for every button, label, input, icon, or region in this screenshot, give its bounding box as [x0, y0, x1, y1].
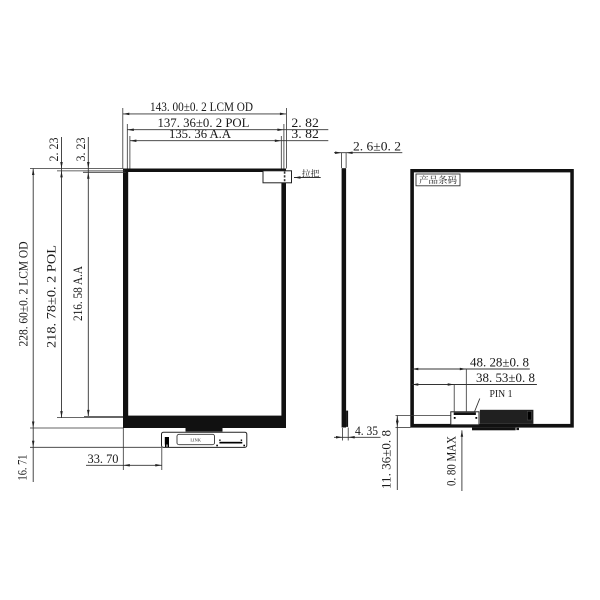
- svg-text:216. 58 A.A: 216. 58 A.A: [71, 266, 85, 321]
- svg-text:16. 71: 16. 71: [16, 455, 30, 481]
- svg-text:33. 70: 33. 70: [88, 452, 119, 466]
- svg-text:11. 36±0. 8: 11. 36±0. 8: [380, 430, 394, 489]
- svg-text:4. 35: 4. 35: [355, 424, 378, 438]
- svg-text:143. 00±0. 2 LCM OD: 143. 00±0. 2 LCM OD: [150, 100, 253, 114]
- svg-text:218. 78±0. 2 POL: 218. 78±0. 2 POL: [45, 245, 59, 348]
- svg-text:48. 28±0. 8: 48. 28±0. 8: [470, 356, 529, 370]
- svg-text:LINK: LINK: [190, 438, 201, 443]
- svg-text:135. 36 A.A: 135. 36 A.A: [169, 127, 231, 141]
- svg-text:2. 6±0. 2: 2. 6±0. 2: [353, 139, 401, 153]
- svg-text:2. 23: 2. 23: [47, 138, 61, 162]
- svg-text:PIN 1: PIN 1: [490, 389, 513, 400]
- svg-text:0. 80 MAX: 0. 80 MAX: [445, 436, 459, 486]
- svg-text:228. 60±0. 2 LCM OD: 228. 60±0. 2 LCM OD: [17, 242, 31, 347]
- svg-text:38. 53±0. 8: 38. 53±0. 8: [476, 371, 535, 385]
- svg-text:3. 82: 3. 82: [291, 127, 319, 141]
- svg-text:3. 23: 3. 23: [74, 138, 88, 162]
